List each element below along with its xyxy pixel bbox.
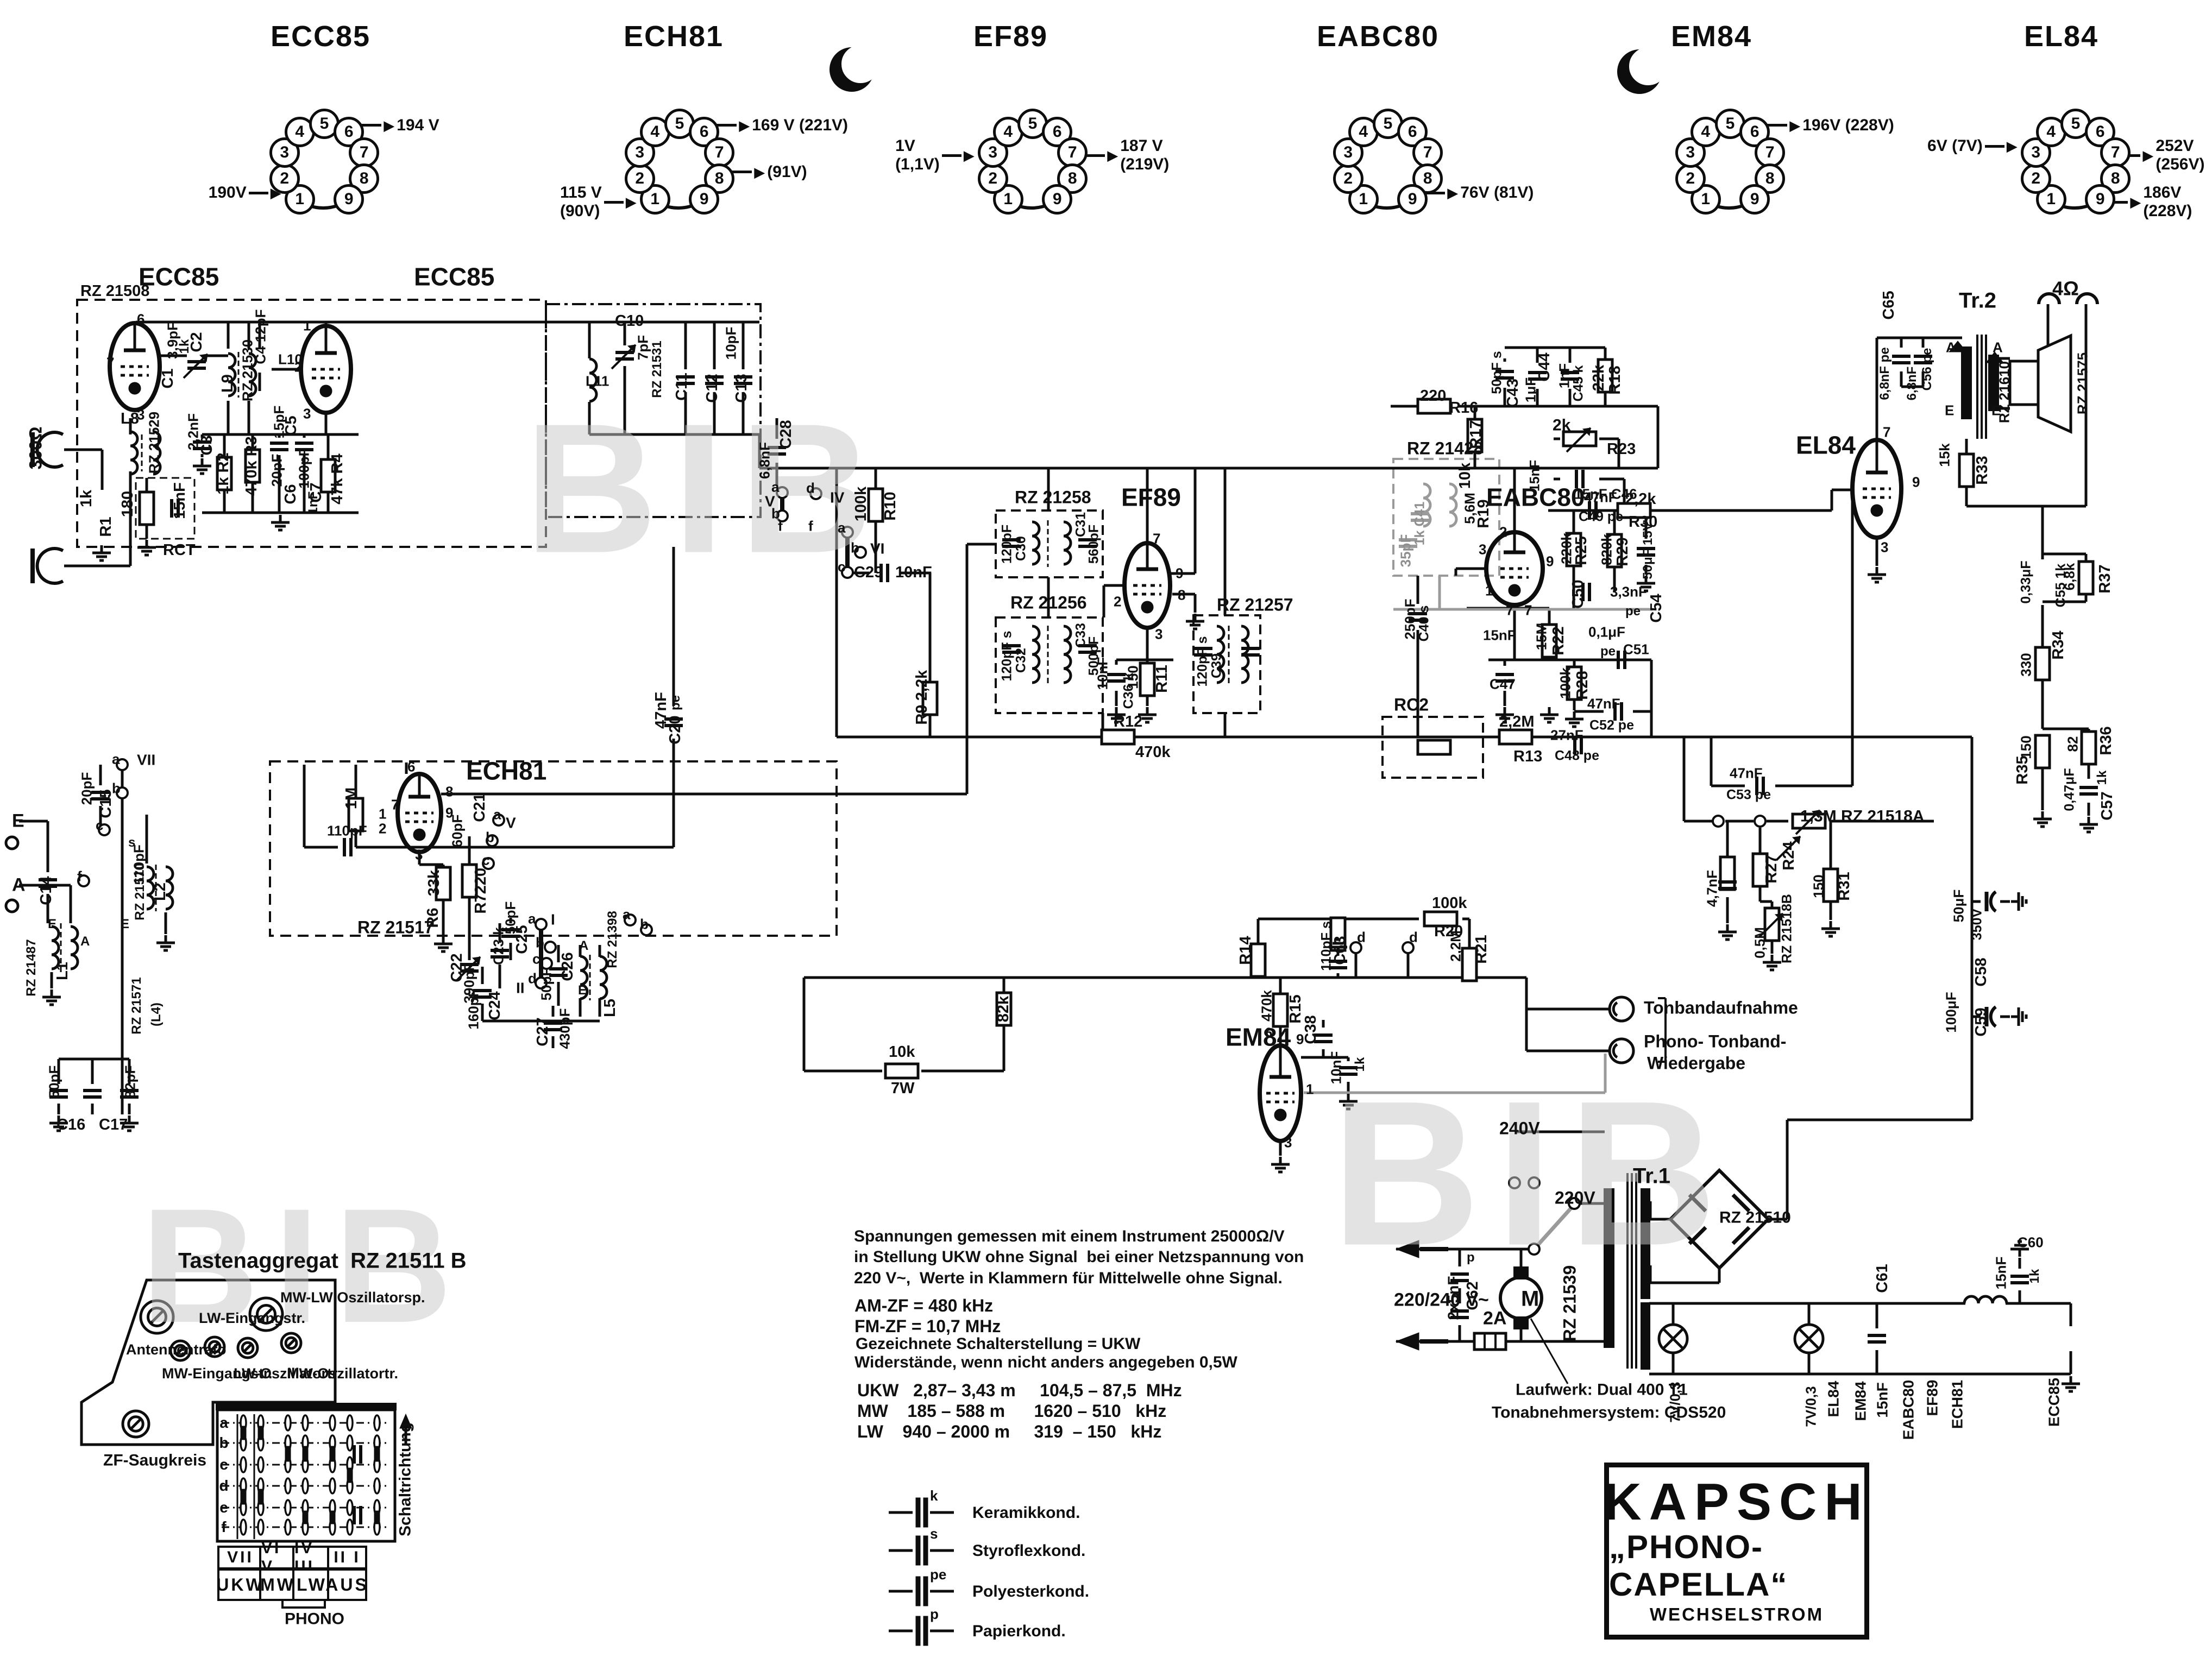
- matrix-numerals-lw: IV III: [292, 1546, 331, 1570]
- matrix-numerals-mw: VI V: [259, 1546, 297, 1570]
- matrix-band-ukw: UKW: [217, 1568, 263, 1601]
- matrix-numerals-aus: II I: [327, 1546, 367, 1570]
- matrix-numerals-ukw: VII: [217, 1546, 263, 1570]
- brand-plate: KAPSCH „PHONO-CAPELLA“ WECHSELSTROM: [1604, 1463, 1869, 1640]
- brand-name: KAPSCH: [1604, 1476, 1869, 1528]
- schematic-page: BIBBIBBIB RZ 21508ECC85ECC85300ΩL8RZ 215…: [0, 0, 2212, 1664]
- matrix-band-aus: AUS: [327, 1568, 367, 1601]
- model-name: „PHONO-CAPELLA“: [1609, 1528, 1864, 1603]
- matrix-band-mw: MW: [259, 1568, 297, 1601]
- power-type: WECHSELSTROM: [1650, 1603, 1824, 1627]
- schematic-artwork: [0, 0, 2212, 1664]
